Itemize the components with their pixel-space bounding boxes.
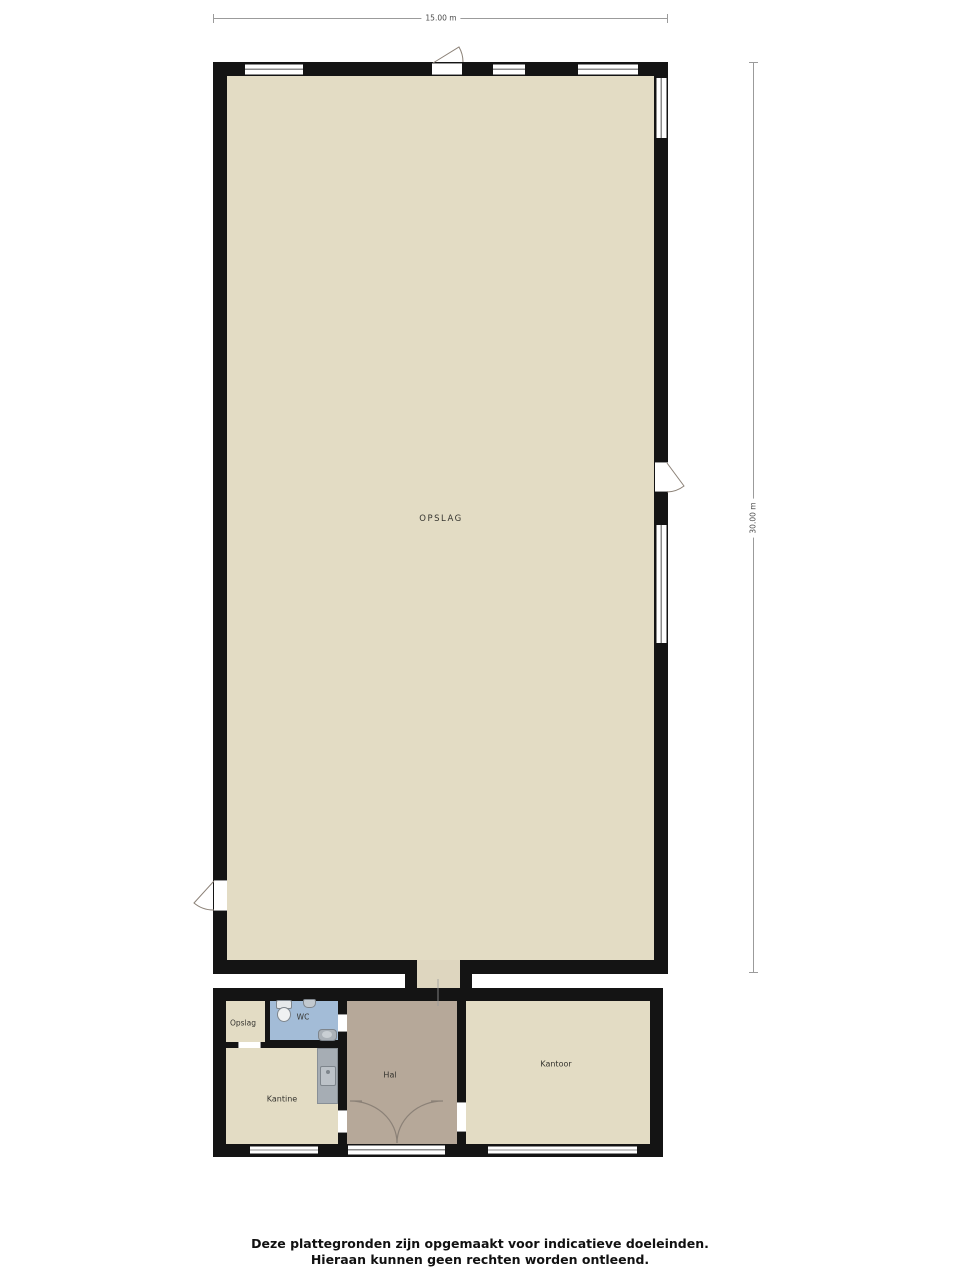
top-door-swing-icon [433, 47, 463, 63]
entry-double-door-left-icon [350, 1101, 397, 1143]
entry-double-door-right-icon [397, 1101, 443, 1143]
disclaimer-text: Deze plattegronden zijn opgemaakt voor i… [0, 1236, 960, 1267]
disclaimer-line-2: Hieraan kunnen geen rechten worden ontle… [0, 1252, 960, 1268]
floorplan-canvas: 15.00 m 30.00 m OPSLAG O [0, 0, 960, 1280]
disclaimer-line-1: Deze plattegronden zijn opgemaakt voor i… [0, 1236, 960, 1252]
right-door-swing-icon [667, 463, 684, 492]
door-swings-overlay [0, 0, 960, 1280]
left-door-swing-icon [194, 881, 214, 910]
